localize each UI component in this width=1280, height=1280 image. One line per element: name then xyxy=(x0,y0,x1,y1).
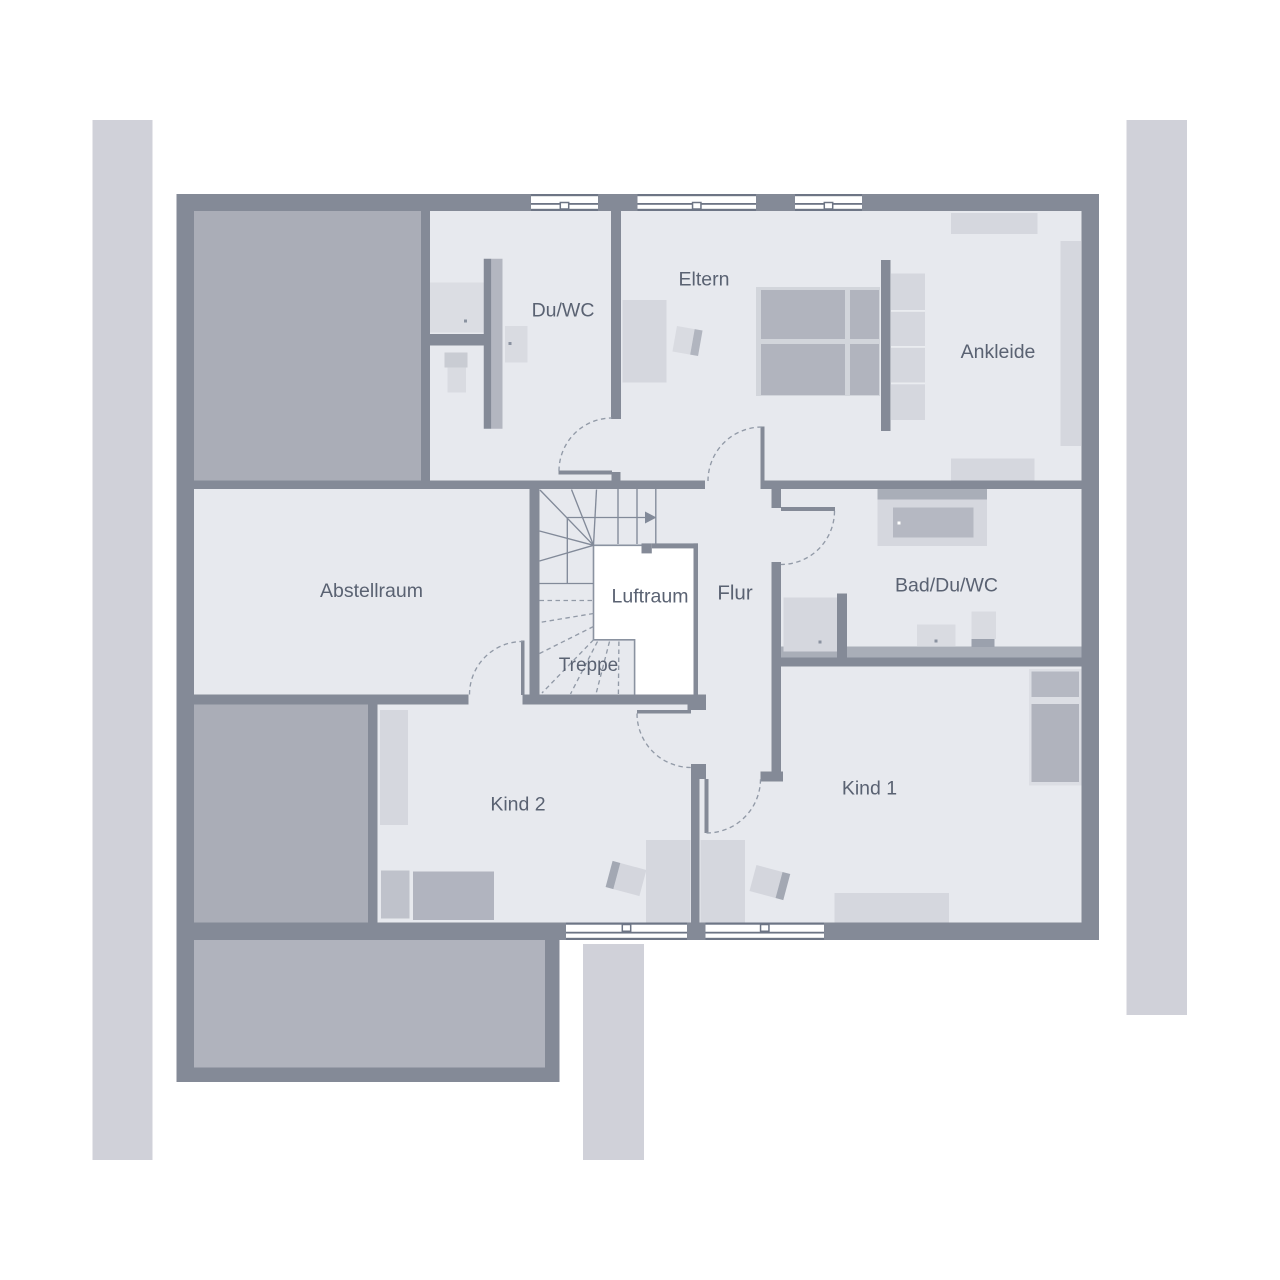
svg-text:Luftraum: Luftraum xyxy=(612,586,689,608)
svg-text:Bad/Du/WC: Bad/Du/WC xyxy=(895,575,998,597)
svg-text:Abstellraum: Abstellraum xyxy=(320,580,423,602)
svg-text:Kind 2: Kind 2 xyxy=(490,794,545,816)
svg-text:Ankleide: Ankleide xyxy=(961,341,1036,363)
svg-text:Flur: Flur xyxy=(717,582,752,605)
svg-text:Treppe: Treppe xyxy=(559,655,619,676)
svg-text:Kind 1: Kind 1 xyxy=(842,778,897,800)
svg-text:Eltern: Eltern xyxy=(679,269,730,291)
svg-text:Du/WC: Du/WC xyxy=(532,300,595,322)
